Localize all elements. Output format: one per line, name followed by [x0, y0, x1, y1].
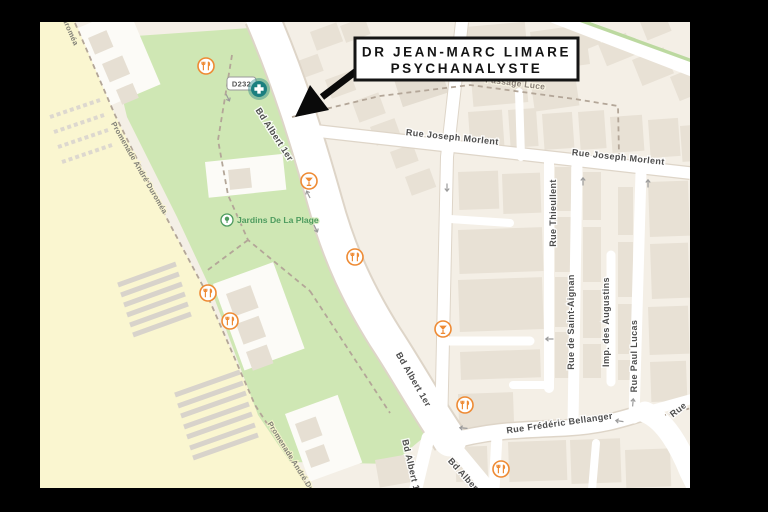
- restaurant-icon[interactable]: [493, 461, 509, 477]
- restaurant-icon[interactable]: [457, 397, 473, 413]
- street-label-saint-aignan: Rue de Saint-Aignan: [566, 274, 576, 370]
- map-svg: Bd Albert 1er Bd Albert 1er Bd Albert 1e…: [40, 22, 690, 488]
- cocktail-icon[interactable]: [435, 321, 451, 337]
- restaurant-icon[interactable]: [200, 285, 216, 301]
- street-label-paul-lucas: Rue Paul Lucas: [629, 320, 639, 393]
- annotation-box: DR JEAN-MARC LIMARE PSYCHANALYSTE: [355, 38, 578, 80]
- restaurant-icon[interactable]: [222, 313, 238, 329]
- street-label-thieullent: Rue Thieullent: [548, 179, 558, 247]
- cocktail-icon[interactable]: [301, 173, 317, 189]
- screenshot-canvas: { "annotation": { "line1": "DR JEAN-MARC…: [0, 0, 768, 512]
- street-label-augustins: Imp. des Augustins: [601, 277, 611, 367]
- restaurant-icon[interactable]: [198, 58, 214, 74]
- annotation-line2: PSYCHANALYSTE: [391, 61, 543, 76]
- annotation-line1: DR JEAN-MARC LIMARE: [362, 45, 571, 60]
- map-canvas[interactable]: Bd Albert 1er Bd Albert 1er Bd Albert 1e…: [40, 22, 690, 488]
- restaurant-icon[interactable]: [347, 249, 363, 265]
- park-label: Jardins De La Plage: [237, 215, 319, 225]
- pharmacy-cross-icon[interactable]: [248, 78, 270, 100]
